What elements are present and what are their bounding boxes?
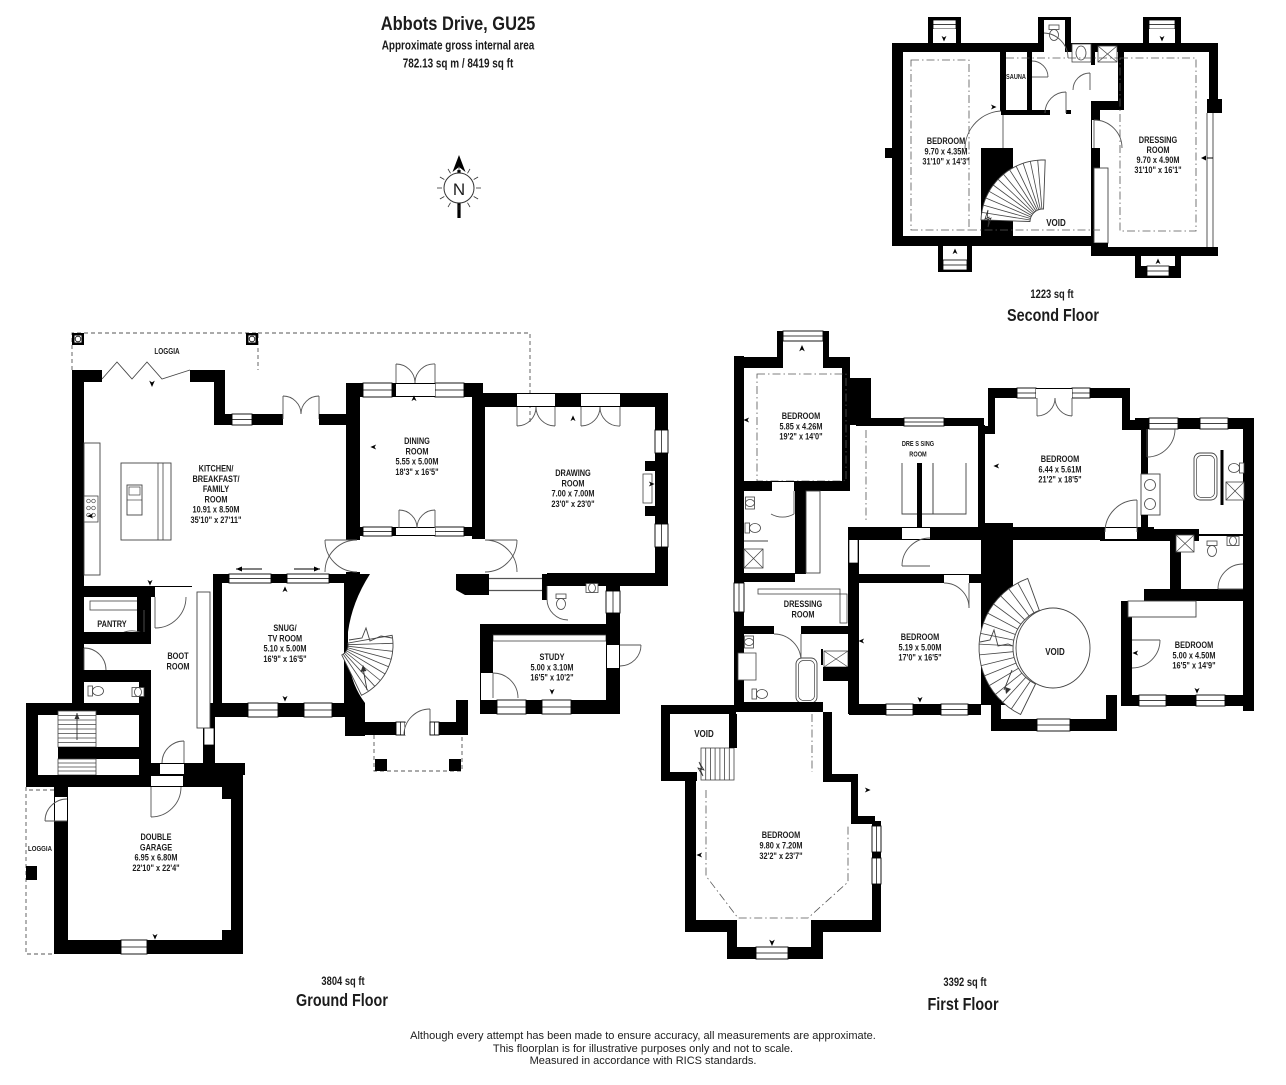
svg-text:19'2" x 14'0": 19'2" x 14'0" <box>779 431 822 442</box>
svg-text:VOID: VOID <box>1046 217 1066 228</box>
svg-text:Abbots Drive, GU25: Abbots Drive, GU25 <box>381 13 536 35</box>
svg-text:16'5" x 10'2": 16'5" x 10'2" <box>530 672 573 683</box>
svg-text:31'10" x 16'1": 31'10" x 16'1" <box>1134 164 1181 175</box>
svg-text:16'5" x 14'9": 16'5" x 14'9" <box>1172 660 1215 671</box>
svg-text:BEDROOM: BEDROOM <box>762 829 800 840</box>
svg-text:Ground Floor: Ground Floor <box>296 991 388 1011</box>
svg-text:Measured in accordance with RI: Measured in accordance with RICS standar… <box>530 1055 757 1067</box>
svg-text:9.80 x 7.20M: 9.80 x 7.20M <box>760 840 803 851</box>
svg-text:VOID: VOID <box>694 728 714 739</box>
svg-text:31'10" x 14'3": 31'10" x 14'3" <box>922 156 969 167</box>
svg-text:22'10" x 22'4": 22'10" x 22'4" <box>132 862 179 873</box>
svg-text:This floorplan is for illustra: This floorplan is for illustrative purpo… <box>493 1043 793 1055</box>
svg-text:ROOM: ROOM <box>792 608 815 619</box>
svg-text:ROOM: ROOM <box>167 660 190 671</box>
svg-text:16'9" x 16'5": 16'9" x 16'5" <box>263 653 306 664</box>
svg-text:3804 sq ft: 3804 sq ft <box>321 975 365 988</box>
svg-text:First Floor: First Floor <box>927 995 999 1015</box>
svg-text:782.13 sq m / 8419 sq ft: 782.13 sq m / 8419 sq ft <box>403 58 514 71</box>
svg-text:21'2" x 18'5": 21'2" x 18'5" <box>1038 474 1081 485</box>
svg-text:17'0" x 16'5": 17'0" x 16'5" <box>898 652 941 663</box>
svg-text:SAUNA: SAUNA <box>1006 73 1026 81</box>
svg-text:LOGGIA: LOGGIA <box>154 346 180 356</box>
svg-text:35'10" x 27'11": 35'10" x 27'11" <box>191 514 242 525</box>
svg-text:3392 sq ft: 3392 sq ft <box>943 976 987 989</box>
svg-text:23'0" x 23'0": 23'0" x 23'0" <box>551 498 594 509</box>
svg-text:32'2" x 23'7": 32'2" x 23'7" <box>759 850 802 861</box>
svg-text:VOID: VOID <box>1045 646 1065 657</box>
svg-text:Second Floor: Second Floor <box>1007 306 1099 326</box>
svg-text:18'3" x 16'5": 18'3" x 16'5" <box>395 466 438 477</box>
svg-text:Approximate gross internal are: Approximate gross internal area <box>382 40 535 53</box>
svg-text:DRE S SING: DRE S SING <box>902 440 934 448</box>
svg-text:LOGGIA: LOGGIA <box>28 845 52 853</box>
svg-text:N: N <box>453 180 465 199</box>
svg-text:ROOM: ROOM <box>909 451 926 459</box>
svg-text:Although every attempt has bee: Although every attempt has been made to … <box>410 1030 876 1042</box>
svg-text:1223 sq ft: 1223 sq ft <box>1030 288 1074 301</box>
svg-text:PANTRY: PANTRY <box>97 618 127 629</box>
